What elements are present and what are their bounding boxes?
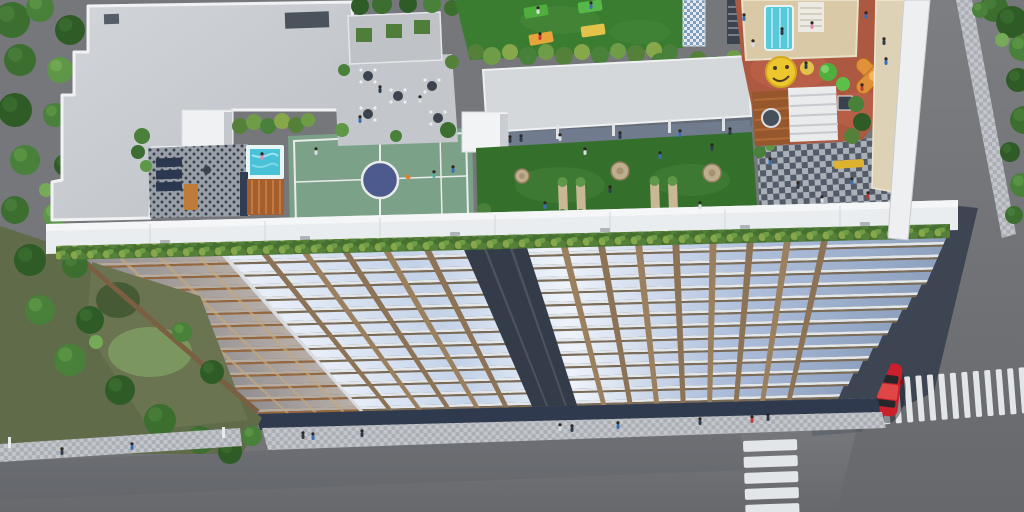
rooftop-deck [52, 0, 906, 228]
stair-bulkhead [462, 112, 508, 152]
roof-vent [285, 11, 330, 29]
roof-hatch [104, 14, 119, 25]
cafe-courtyard [334, 54, 459, 146]
smiley-ground-art [766, 57, 796, 87]
roof-wood-lounge [752, 90, 790, 146]
plunge-pool [246, 145, 284, 179]
scene-svg [0, 0, 1024, 512]
pool-hedge [232, 113, 315, 134]
round-deck-table [762, 109, 780, 127]
planter-wall [348, 12, 442, 64]
mosaic-wall [683, 0, 705, 46]
play-platform [742, 0, 858, 60]
orange-lounger [184, 184, 198, 210]
rendering-canvas [0, 0, 1024, 512]
yoga-lawn [455, 0, 683, 65]
ball [406, 175, 411, 180]
stair-core [182, 110, 232, 150]
